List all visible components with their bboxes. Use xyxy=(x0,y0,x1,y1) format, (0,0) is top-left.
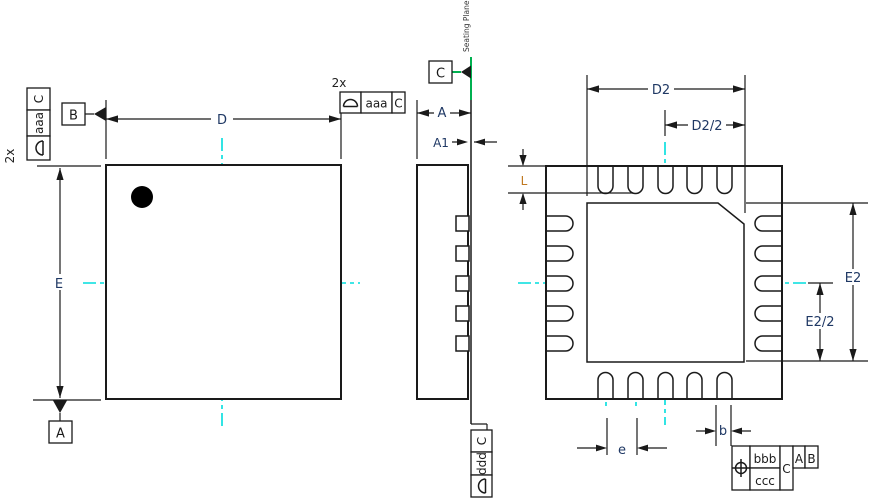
fcf-position-upper: bbb xyxy=(754,452,777,466)
fcf-position-datum1: C xyxy=(782,462,790,476)
fcf-position-lower: ccc xyxy=(755,474,775,488)
bottom-view: D2 D2/2 E2 E2/2 L e b bbb ccc C A B xyxy=(508,75,868,490)
fcf-top-frame: 2x aaa C xyxy=(332,76,405,113)
dim-e2-label: E2 xyxy=(845,271,862,286)
fcf-left-datum: C xyxy=(32,95,46,103)
pin1-indicator-dot xyxy=(131,186,153,208)
fcf-position-datum2: A xyxy=(795,452,804,466)
seating-plane-label: Seating Plane xyxy=(462,0,471,52)
dim-d2half-label: D2/2 xyxy=(692,119,723,134)
datum-a-triangle xyxy=(53,401,67,414)
fcf-left-frame: C aaa 2x xyxy=(3,88,50,163)
datum-a-label: A xyxy=(56,427,65,442)
fcf-top-datum: C xyxy=(394,97,402,111)
fcf-bottom-datum: C xyxy=(475,437,489,445)
count-2x-top: 2x xyxy=(332,76,347,90)
datum-c-triangle xyxy=(461,66,471,79)
fcf-left-tolerance: aaa xyxy=(32,112,46,134)
datum-c-label: C xyxy=(436,67,445,82)
package-body-bottom-view xyxy=(546,166,782,399)
top-view: D E B A C aaa 2x 2x aaa C xyxy=(3,76,405,443)
datum-leader-lines xyxy=(60,114,94,421)
dim-pitch-label: e xyxy=(618,443,626,458)
fcf-top-tolerance: aaa xyxy=(365,97,387,111)
fcf-bottom-tolerance: ddd xyxy=(475,452,489,475)
dim-d2-label: D2 xyxy=(652,83,670,98)
fcf-top-symbol-cell xyxy=(340,92,361,113)
fcf-left-symbol-cell xyxy=(27,136,50,160)
datum-b-triangle xyxy=(94,107,106,121)
package-outline-drawing: D E B A C aaa 2x 2x aaa C xyxy=(0,0,884,498)
fcf-bottom-symbol-cell xyxy=(471,475,492,497)
datum-b-label: B xyxy=(69,109,78,124)
side-view: C Seating Plane A A1 C ddd xyxy=(417,0,497,497)
dim-a1-label: A1 xyxy=(433,136,449,150)
dim-d-label: D xyxy=(217,113,227,128)
dim-l-label: L xyxy=(521,174,528,188)
dim-b-label: b xyxy=(719,424,727,439)
fcf-position-datum3: B xyxy=(807,452,815,466)
drawing-canvas: D E B A C aaa 2x 2x aaa C xyxy=(0,0,884,498)
count-2x-left: 2x xyxy=(3,149,17,164)
fcf-position-frame: bbb ccc C A B xyxy=(732,446,818,490)
dim-e2half-label: E2/2 xyxy=(805,315,834,330)
fcf-bottom-leader xyxy=(471,424,487,430)
fcf-bottom-frame: C ddd xyxy=(471,430,492,497)
dim-e-label: E xyxy=(55,277,63,292)
dim-a-label: A xyxy=(438,106,447,121)
